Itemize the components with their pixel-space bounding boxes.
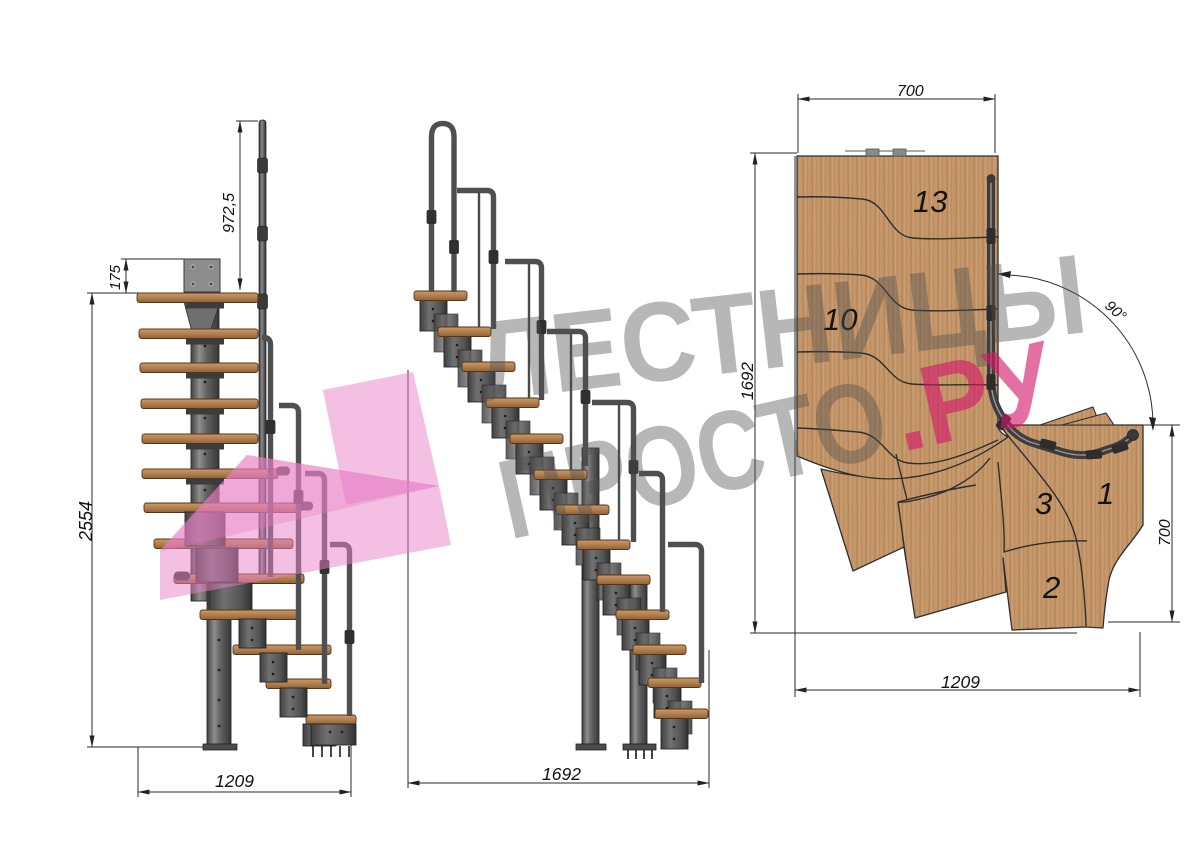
svg-text:1209: 1209 bbox=[941, 672, 980, 692]
svg-text:1: 1 bbox=[1097, 476, 1114, 511]
svg-text:700: 700 bbox=[1157, 519, 1174, 546]
svg-text:2554: 2554 bbox=[76, 501, 96, 542]
svg-text:13: 13 bbox=[913, 184, 947, 219]
svg-text:700: 700 bbox=[897, 83, 924, 100]
svg-text:2: 2 bbox=[1042, 570, 1060, 605]
svg-text:1209: 1209 bbox=[215, 771, 254, 791]
svg-text:175: 175 bbox=[107, 264, 124, 290]
svg-text:972,5: 972,5 bbox=[221, 193, 238, 233]
svg-text:3: 3 bbox=[1035, 486, 1052, 521]
svg-text:1692: 1692 bbox=[542, 764, 581, 784]
